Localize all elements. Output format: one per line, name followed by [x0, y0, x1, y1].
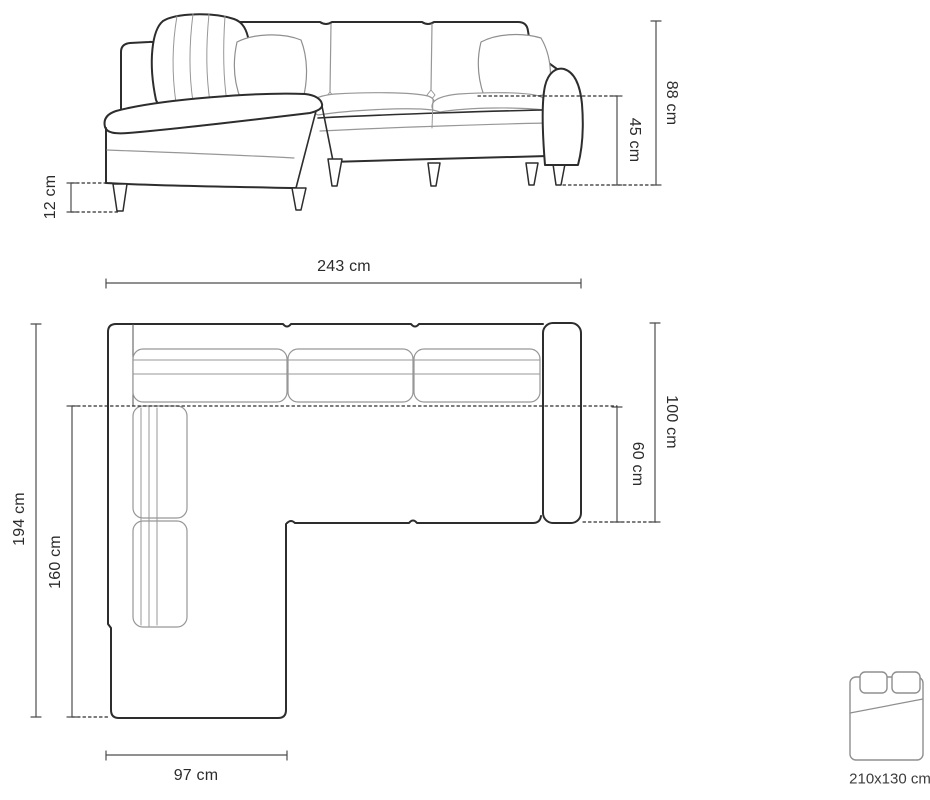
dimension-label-chaise-length: 160 cm — [47, 535, 65, 589]
dimension-line-seat-depth — [612, 407, 622, 522]
front-view-drawing — [67, 14, 661, 288]
dimension-label-chaise-width: 97 cm — [174, 767, 219, 785]
sofa-diagram-canvas — [0, 0, 930, 800]
plan-back-cushions — [133, 349, 540, 402]
dimension-line-chaise-width — [106, 751, 287, 760]
throw-pillow-left — [234, 35, 306, 103]
sofa-armrest — [543, 69, 583, 165]
dimension-label-total-depth: 194 cm — [11, 492, 29, 546]
dimension-label-sofa-depth: 100 cm — [662, 395, 680, 449]
throw-pillow-right — [478, 35, 550, 98]
dimension-line-total-height — [651, 21, 661, 185]
dimension-line-sofa-depth — [650, 323, 660, 522]
plan-armrest — [543, 323, 581, 523]
dimension-label-total-width: 243 cm — [317, 258, 371, 276]
dimension-line-total-depth — [31, 324, 41, 717]
dimension-label-seat-depth: 60 cm — [628, 442, 646, 487]
seat-cushion-left — [310, 93, 435, 115]
dimension-label-total-height: 88 cm — [662, 81, 680, 126]
bed-icon — [850, 672, 923, 760]
dimension-line-total-width — [106, 279, 581, 288]
dimension-label-leg-height: 12 cm — [42, 175, 60, 220]
bed-size-label: 210x130 cm — [849, 771, 930, 788]
dimension-line-leg-height — [67, 183, 118, 212]
top-view-drawing — [31, 323, 660, 760]
dimension-line-chaise-length — [67, 406, 77, 717]
sofa-dimension-diagram: 12 cm 45 cm 88 cm 243 cm 194 cm 160 cm 1… — [0, 0, 930, 800]
dimension-label-seat-height: 45 cm — [625, 118, 643, 163]
plan-outline — [116, 324, 543, 327]
